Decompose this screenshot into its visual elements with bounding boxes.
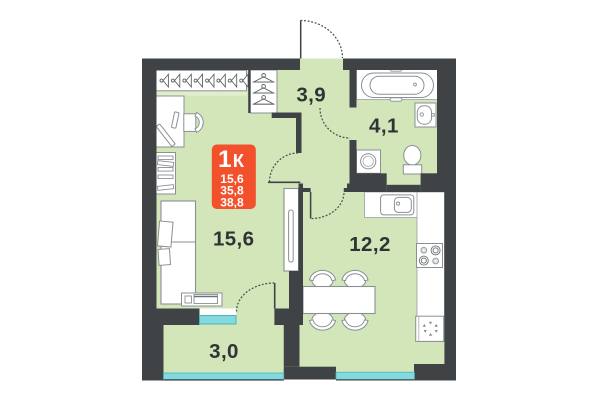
svg-text:4,1: 4,1 bbox=[369, 115, 399, 138]
svg-text:К: К bbox=[233, 150, 245, 171]
svg-text:38,8: 38,8 bbox=[220, 195, 244, 209]
svg-text:3,0: 3,0 bbox=[209, 340, 239, 363]
svg-text:3,9: 3,9 bbox=[296, 84, 326, 107]
svg-text:15,6: 15,6 bbox=[213, 227, 255, 250]
svg-text:1: 1 bbox=[218, 146, 232, 173]
svg-text:12,2: 12,2 bbox=[349, 233, 391, 256]
